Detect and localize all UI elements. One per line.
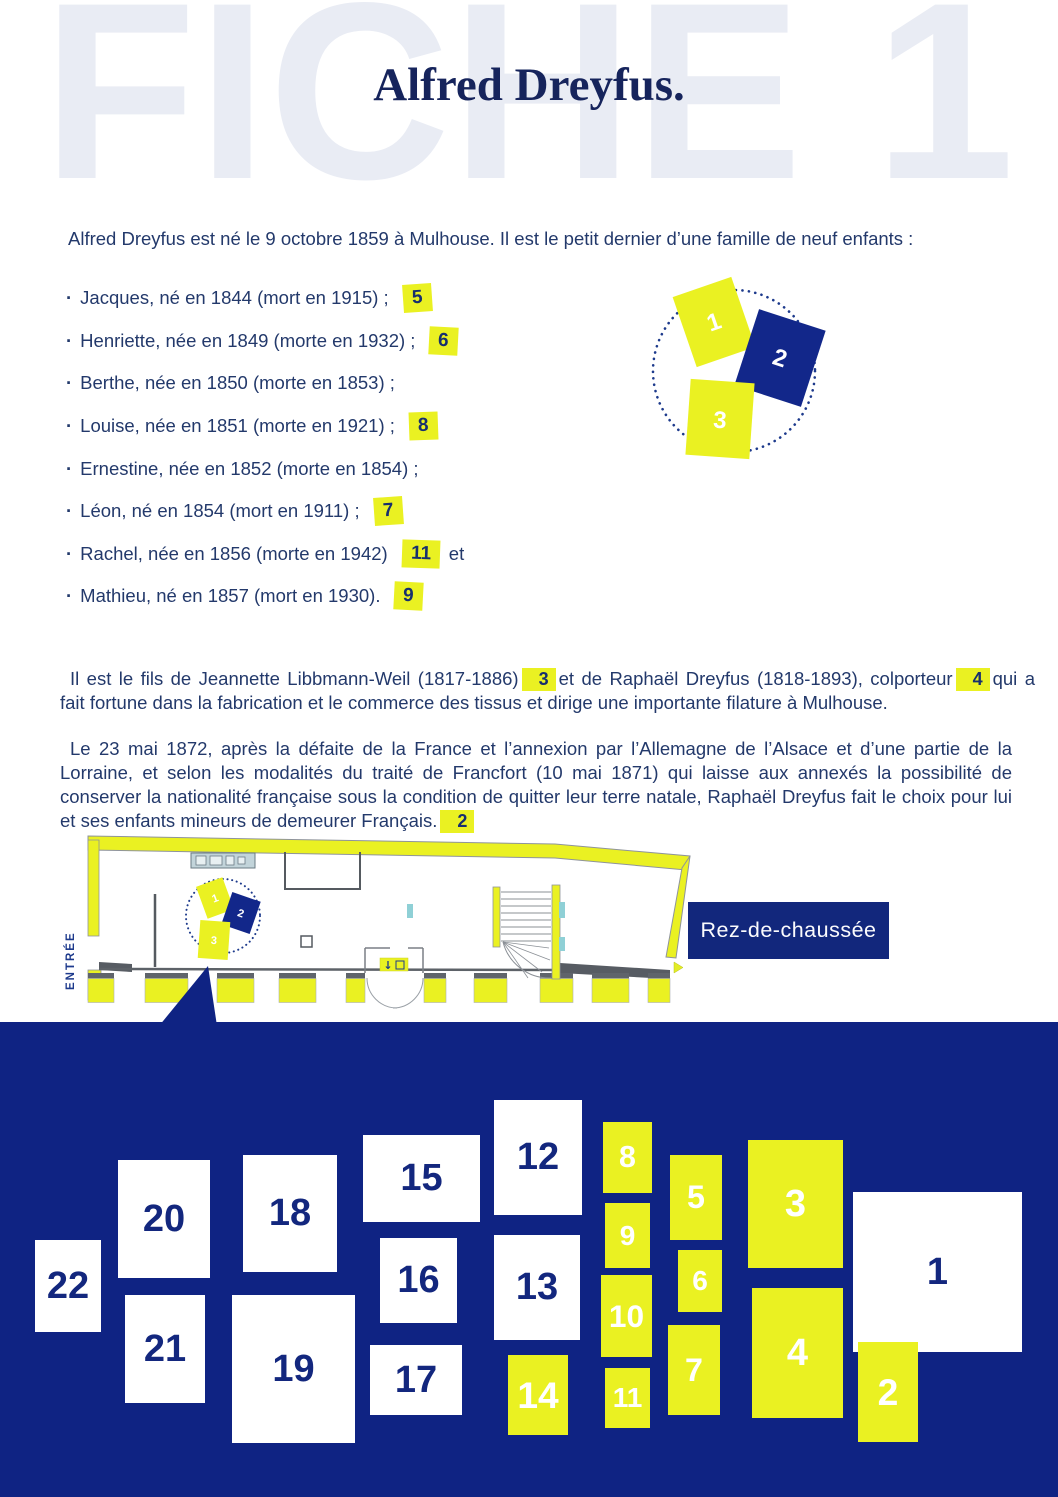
map-tile-4: 4: [752, 1288, 843, 1418]
plan-window-mark: [559, 902, 565, 918]
plan-right-wall: [666, 856, 690, 958]
badge-2: 2: [440, 810, 474, 833]
map-tile-2: 2: [858, 1342, 918, 1442]
sibling-item: ·Ernestine, née en 1852 (morte en 1854) …: [66, 447, 686, 490]
plan-piers: [88, 973, 670, 1003]
plan-window-mark: [559, 937, 565, 951]
plan-left-step: [99, 962, 132, 972]
map-tile-5: 5: [670, 1155, 722, 1240]
sibling-item: ·Mathieu, né en 1857 (mort en 1930).9: [66, 575, 686, 618]
badge-8: 8: [408, 412, 438, 441]
sibling-text: Henriette, née en 1849 (morte en 1932) ;: [80, 330, 415, 352]
intro-paragraph: Alfred Dreyfus est né le 9 octobre 1859 …: [60, 227, 1010, 251]
svg-text:3: 3: [712, 407, 727, 435]
plan-left-wall: [88, 840, 99, 936]
door-arc-right: [393, 978, 423, 1008]
sibling-text: Ernestine, née en 1852 (morte en 1854) ;: [80, 458, 418, 480]
map-tile-21: 21: [125, 1295, 205, 1403]
badge-4: 4: [956, 668, 990, 691]
parents-text-2: et de Raphaël Dreyfus (1818-1893), colpo…: [559, 668, 953, 689]
parents-paragraph: Il est le fils de Jeannette Libbmann-Wei…: [60, 667, 1035, 715]
map-section: 12345678910111213141516171819202122: [0, 1022, 1058, 1497]
plan-top-wall: [88, 836, 690, 870]
bullet-icon: ·: [66, 330, 72, 352]
map-tile-15: 15: [363, 1135, 480, 1222]
sibling-text: Léon, né en 1854 (mort en 1911) ;: [80, 500, 359, 522]
entrance-label: ENTRÉE: [64, 931, 77, 990]
sibling-item: ·Léon, né en 1854 (mort en 1911) ;7: [66, 490, 686, 533]
page-title: Alfred Dreyfus.: [0, 58, 1058, 112]
bullet-icon: ·: [66, 543, 72, 565]
plan-window-mark: [407, 904, 413, 918]
map-tile-14: 14: [508, 1355, 568, 1435]
stair-sign-arrow: ↓: [383, 959, 392, 972]
plan-mini-diagram: 1 2 3: [186, 877, 261, 960]
map-tile-10: 10: [601, 1275, 652, 1357]
map-tile-19: 19: [232, 1295, 355, 1443]
badge-6: 6: [429, 326, 459, 355]
bullet-icon: ·: [66, 415, 72, 437]
sibling-text: Berthe, née en 1850 (morte en 1853) ;: [80, 372, 395, 394]
badge-5: 5: [402, 283, 432, 313]
map-tile-8: 8: [603, 1122, 652, 1193]
map-tile-11: 11: [605, 1368, 650, 1428]
bullet-icon: ·: [66, 585, 72, 607]
sibling-text: Jacques, né en 1844 (mort en 1915) ;: [80, 287, 389, 309]
kitchen-counter: [191, 853, 255, 868]
map-tile-17: 17: [370, 1345, 462, 1415]
door-arc-left: [367, 978, 397, 1008]
bullet-icon: ·: [66, 458, 72, 480]
map-tile-1: 1: [853, 1192, 1022, 1352]
map-tile-9: 9: [605, 1203, 650, 1268]
sibling-suffix: et: [449, 543, 464, 565]
badge-3: 3: [522, 668, 556, 691]
plan-bottom-wall: [99, 969, 560, 970]
level-label: Rez-de-chaussée: [688, 902, 889, 959]
siblings-list: ·Jacques, né en 1844 (mort en 1915) ;5·H…: [66, 277, 686, 618]
sibling-item: ·Henriette, née en 1849 (morte en 1932) …: [66, 320, 686, 363]
map-tile-16: 16: [380, 1238, 457, 1323]
sibling-text: Mathieu, né en 1857 (mort en 1930).: [80, 585, 380, 607]
bullet-icon: ·: [66, 500, 72, 522]
family-card-3: 3: [685, 379, 754, 459]
family-cards-diagram: 1 2 3: [639, 276, 829, 471]
bullet-icon: ·: [66, 287, 72, 309]
level-label-text: Rez-de-chaussée: [700, 918, 876, 943]
plan-recess: [285, 852, 360, 889]
bullet-icon: ·: [66, 372, 72, 394]
map-tile-18: 18: [243, 1155, 337, 1272]
map-tile-3: 3: [748, 1140, 843, 1268]
badge-7: 7: [373, 496, 403, 526]
sibling-item: ·Louise, née en 1851 (morte en 1921) ;8: [66, 405, 686, 448]
plan-column: [301, 936, 312, 947]
sibling-item: ·Rachel, née en 1856 (morte en 1942)11et: [66, 533, 686, 576]
sibling-text: Louise, née en 1851 (morte en 1921) ;: [80, 415, 395, 437]
map-tile-7: 7: [668, 1325, 720, 1415]
sibling-text: Rachel, née en 1856 (morte en 1942): [80, 543, 388, 565]
sibling-item: ·Jacques, né en 1844 (mort en 1915) ;5: [66, 277, 686, 320]
svg-text:3: 3: [210, 935, 217, 947]
map-tile-12: 12: [494, 1100, 582, 1215]
treaty-text: Le 23 mai 1872, après la défaite de la F…: [60, 738, 1012, 831]
map-tile-20: 20: [118, 1160, 210, 1278]
badge-11: 11: [401, 539, 440, 568]
parents-text-1: Il est le fils de Jeannette Libbmann-Wei…: [70, 668, 519, 689]
badge-9: 9: [394, 582, 424, 611]
map-tile-22: 22: [35, 1240, 101, 1332]
fiche-page: FICHE 1 Alfred Dreyfus. Alfred Dreyfus e…: [0, 0, 1058, 1497]
plan-side-arrow-icon: [674, 962, 683, 973]
treaty-paragraph: Le 23 mai 1872, après la défaite de la F…: [60, 737, 1012, 833]
staircase: [407, 885, 565, 979]
sibling-item: ·Berthe, née en 1850 (morte en 1853) ;: [66, 362, 686, 405]
map-tile-13: 13: [494, 1235, 580, 1340]
map-tile-6: 6: [678, 1250, 722, 1312]
